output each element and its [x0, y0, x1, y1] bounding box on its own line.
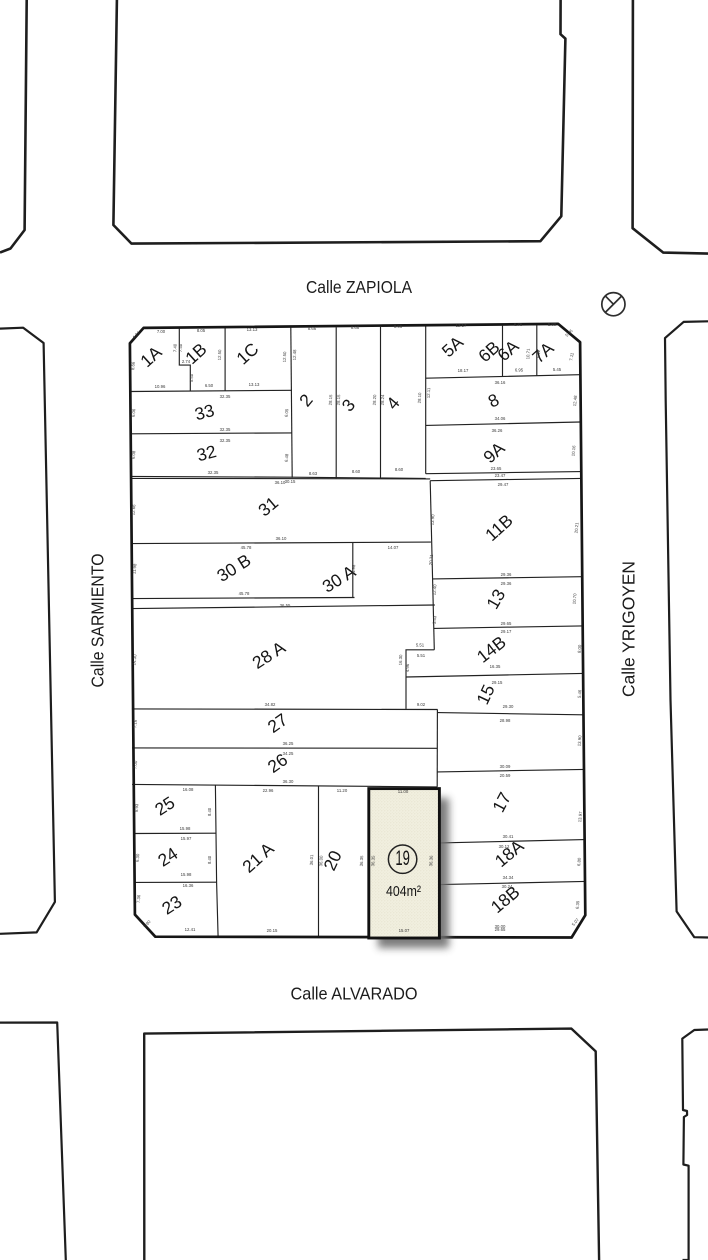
svg-text:Calle SARMIENTO: Calle SARMIENTO: [88, 554, 108, 688]
svg-text:29.47: 29.47: [498, 482, 509, 487]
svg-text:14.07: 14.07: [388, 545, 399, 550]
svg-text:8.40: 8.40: [207, 807, 212, 816]
svg-text:20.21: 20.21: [428, 554, 434, 566]
svg-text:9.02: 9.02: [417, 702, 426, 707]
svg-text:12.11: 12.11: [426, 387, 431, 398]
svg-text:8.05: 8.05: [197, 328, 206, 333]
svg-text:36.01: 36.01: [309, 854, 314, 866]
svg-text:36.26: 36.26: [492, 428, 503, 433]
svg-text:7.16: 7.16: [132, 719, 138, 728]
svg-text:7.36: 7.36: [136, 894, 142, 903]
svg-text:29.36: 29.36: [501, 581, 512, 586]
svg-text:36.00: 36.00: [318, 855, 323, 867]
svg-text:10.70: 10.70: [572, 593, 578, 605]
svg-text:404m²: 404m²: [386, 883, 421, 900]
svg-text:28.24: 28.24: [380, 394, 385, 406]
svg-text:16.35: 16.35: [490, 664, 501, 669]
svg-text:6.95: 6.95: [515, 368, 524, 373]
svg-text:11.98: 11.98: [351, 564, 356, 575]
svg-text:19: 19: [395, 846, 410, 870]
svg-text:10.16: 10.16: [571, 445, 577, 457]
svg-text:16.30: 16.30: [398, 654, 403, 666]
svg-text:7.00: 7.00: [157, 329, 166, 334]
svg-text:32.35: 32.35: [220, 394, 231, 399]
svg-text:8.40: 8.40: [207, 855, 212, 864]
svg-text:6.80: 6.80: [576, 857, 582, 866]
svg-text:30.09: 30.09: [500, 764, 511, 769]
svg-text:5.12: 5.12: [536, 349, 541, 358]
svg-text:12.48: 12.48: [572, 395, 578, 407]
svg-text:18.17: 18.17: [458, 368, 469, 373]
svg-text:36.35: 36.35: [370, 855, 375, 867]
svg-text:28.15: 28.15: [328, 394, 333, 406]
svg-text:4.96: 4.96: [405, 663, 410, 672]
svg-text:6.76: 6.76: [514, 322, 523, 327]
svg-text:6.30: 6.30: [135, 853, 141, 862]
svg-text:8.66: 8.66: [351, 325, 360, 330]
svg-text:32.35: 32.35: [208, 470, 219, 475]
svg-text:20.59: 20.59: [500, 773, 511, 778]
svg-text:12.50: 12.50: [282, 351, 287, 363]
svg-text:20.15: 20.15: [267, 928, 278, 933]
svg-text:5.43: 5.43: [432, 615, 438, 624]
svg-text:12.50: 12.50: [217, 349, 222, 361]
svg-text:8.96: 8.96: [394, 324, 403, 329]
svg-text:11.20: 11.20: [337, 788, 348, 793]
svg-text:13.97: 13.97: [577, 811, 583, 823]
svg-text:5.45: 5.45: [553, 367, 562, 372]
svg-text:16.36: 16.36: [183, 883, 194, 888]
svg-text:45.78: 45.78: [241, 545, 252, 550]
svg-text:28.20: 28.20: [372, 394, 377, 406]
svg-text:12.66: 12.66: [131, 504, 137, 516]
svg-text:34.34: 34.34: [503, 875, 514, 880]
svg-text:45.78: 45.78: [239, 591, 250, 596]
svg-text:12.17: 12.17: [456, 323, 467, 328]
svg-text:36.36: 36.36: [428, 855, 433, 867]
svg-text:8.66: 8.66: [308, 326, 317, 331]
svg-text:36.55: 36.55: [280, 603, 291, 608]
svg-text:13.90: 13.90: [577, 735, 583, 747]
svg-text:12.48: 12.48: [292, 349, 297, 361]
svg-text:11.98: 11.98: [132, 563, 138, 574]
svg-text:8.60: 8.60: [352, 469, 361, 474]
svg-text:5.46: 5.46: [577, 689, 583, 698]
svg-text:34.25: 34.25: [283, 751, 294, 756]
svg-text:6.50: 6.50: [205, 383, 214, 388]
svg-text:8.93: 8.93: [134, 803, 140, 812]
svg-text:12.40: 12.40: [432, 584, 438, 596]
svg-text:23.47: 23.47: [495, 473, 506, 478]
svg-text:29.30: 29.30: [503, 704, 514, 709]
svg-text:29.17: 29.17: [501, 629, 512, 634]
svg-text:15.98: 15.98: [180, 826, 191, 831]
svg-text:16.08: 16.08: [183, 787, 194, 792]
svg-text:36.10: 36.10: [275, 480, 286, 485]
svg-text:13.13: 13.13: [247, 327, 258, 332]
svg-text:Calle ZAPIOLA: Calle ZAPIOLA: [306, 277, 412, 297]
svg-text:15.07: 15.07: [399, 928, 410, 933]
svg-text:28.98: 28.98: [500, 718, 511, 723]
svg-text:8.66: 8.66: [130, 361, 136, 370]
svg-text:Calle YRIGOYEN: Calle YRIGOYEN: [619, 561, 639, 697]
svg-text:24.30: 24.30: [132, 654, 138, 666]
svg-text:2.74: 2.74: [182, 359, 191, 364]
svg-text:36.10: 36.10: [276, 536, 287, 541]
svg-text:15.97: 15.97: [181, 836, 192, 841]
svg-text:28.10: 28.10: [417, 392, 422, 404]
svg-text:6.08: 6.08: [131, 450, 137, 459]
svg-text:23.65: 23.65: [491, 466, 502, 471]
svg-text:15.98: 15.98: [181, 872, 192, 877]
svg-text:8.00: 8.00: [577, 644, 583, 653]
svg-text:30.24: 30.24: [502, 884, 513, 889]
svg-text:29.36: 29.36: [501, 572, 512, 577]
svg-text:32.35: 32.35: [220, 427, 231, 432]
svg-text:Calle ALVARADO: Calle ALVARADO: [291, 984, 418, 1004]
svg-text:36.25: 36.25: [283, 741, 294, 746]
svg-text:32.35: 32.35: [220, 438, 231, 443]
svg-text:13.13: 13.13: [249, 382, 260, 387]
svg-text:22.96: 22.96: [263, 788, 274, 793]
svg-text:10.71: 10.71: [525, 348, 530, 360]
svg-text:29.15: 29.15: [492, 680, 503, 685]
svg-text:5.80: 5.80: [548, 322, 557, 327]
svg-text:6.06: 6.06: [131, 408, 137, 417]
svg-text:13.90: 13.90: [430, 514, 436, 526]
svg-text:12.41: 12.41: [185, 927, 196, 932]
svg-text:6.35: 6.35: [575, 900, 581, 909]
svg-text:36.35: 36.35: [359, 855, 364, 867]
svg-text:30.00: 30.00: [495, 924, 506, 929]
svg-text:8.63: 8.63: [309, 471, 318, 476]
svg-text:5.51: 5.51: [417, 653, 426, 658]
svg-text:5.50: 5.50: [189, 373, 194, 382]
svg-text:7.40: 7.40: [172, 343, 177, 352]
svg-text:8.60: 8.60: [395, 467, 404, 472]
svg-text:34.06: 34.06: [495, 416, 506, 421]
svg-text:30.12: 30.12: [499, 844, 510, 849]
svg-text:30.15: 30.15: [285, 479, 296, 484]
svg-text:7.00: 7.00: [132, 760, 138, 769]
svg-text:10.96: 10.96: [155, 384, 166, 389]
svg-text:7.40: 7.40: [178, 343, 183, 352]
svg-text:6.48: 6.48: [284, 453, 290, 462]
svg-text:34.82: 34.82: [265, 702, 276, 707]
svg-text:36.30: 36.30: [283, 779, 294, 784]
svg-text:5.51: 5.51: [416, 643, 425, 648]
svg-text:29.65: 29.65: [501, 621, 512, 626]
svg-text:36.16: 36.16: [495, 380, 506, 385]
svg-text:28.15: 28.15: [336, 394, 341, 406]
svg-text:6.05: 6.05: [284, 408, 290, 417]
svg-text:20.21: 20.21: [574, 522, 580, 534]
svg-text:11.00: 11.00: [398, 789, 409, 794]
svg-text:30.41: 30.41: [503, 834, 514, 839]
